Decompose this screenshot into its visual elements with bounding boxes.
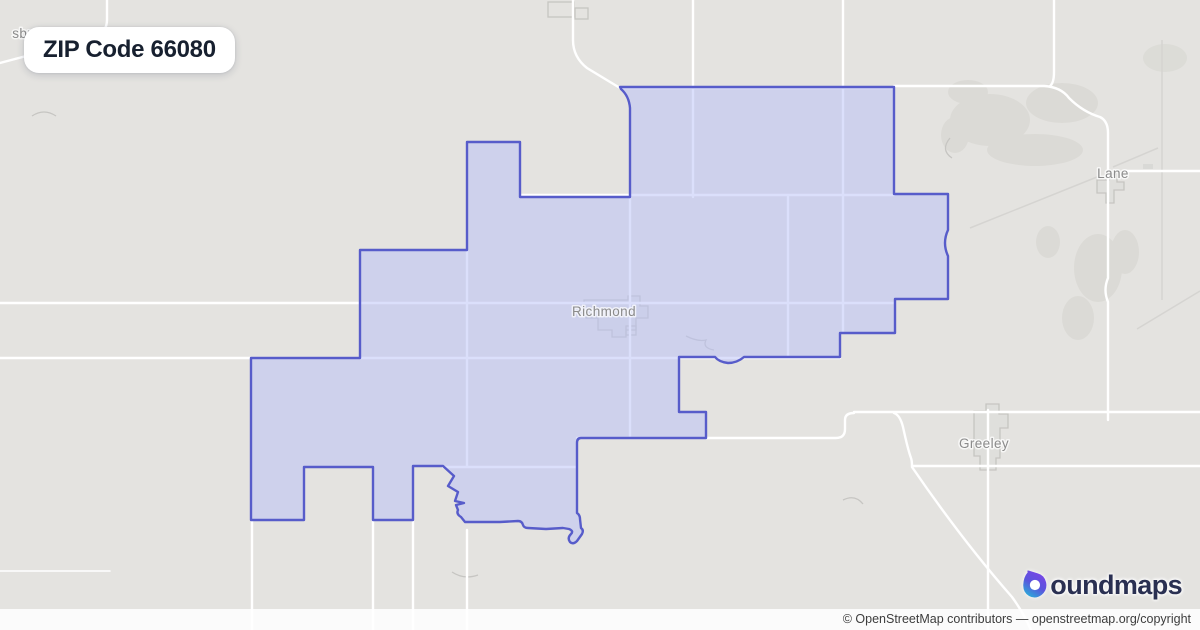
- zip-code-badge-label: ZIP Code 66080: [43, 36, 216, 63]
- boundmaps-logo-text: oundmaps: [1050, 572, 1182, 599]
- map-mark: [1143, 164, 1153, 169]
- boundmaps-logo[interactable]: oundmaps: [1022, 570, 1182, 600]
- attribution-text: © OpenStreetMap contributors —: [843, 609, 1032, 630]
- place-label-lane: Lane: [1097, 166, 1129, 181]
- place-label-richmond: Richmond: [572, 304, 636, 319]
- map-canvas[interactable]: sburg Richmond Lane Greeley: [0, 0, 1200, 630]
- map-viewport[interactable]: sburg Richmond Lane Greeley ZIP Code 660…: [0, 0, 1200, 630]
- boundmaps-logo-icon: [1022, 570, 1049, 600]
- attribution-bar: © OpenStreetMap contributors — openstree…: [0, 609, 1200, 630]
- zip-code-badge: ZIP Code 66080: [24, 27, 235, 73]
- attribution-link[interactable]: openstreetmap.org/copyright: [1032, 609, 1191, 630]
- place-label-greeley: Greeley: [959, 436, 1009, 451]
